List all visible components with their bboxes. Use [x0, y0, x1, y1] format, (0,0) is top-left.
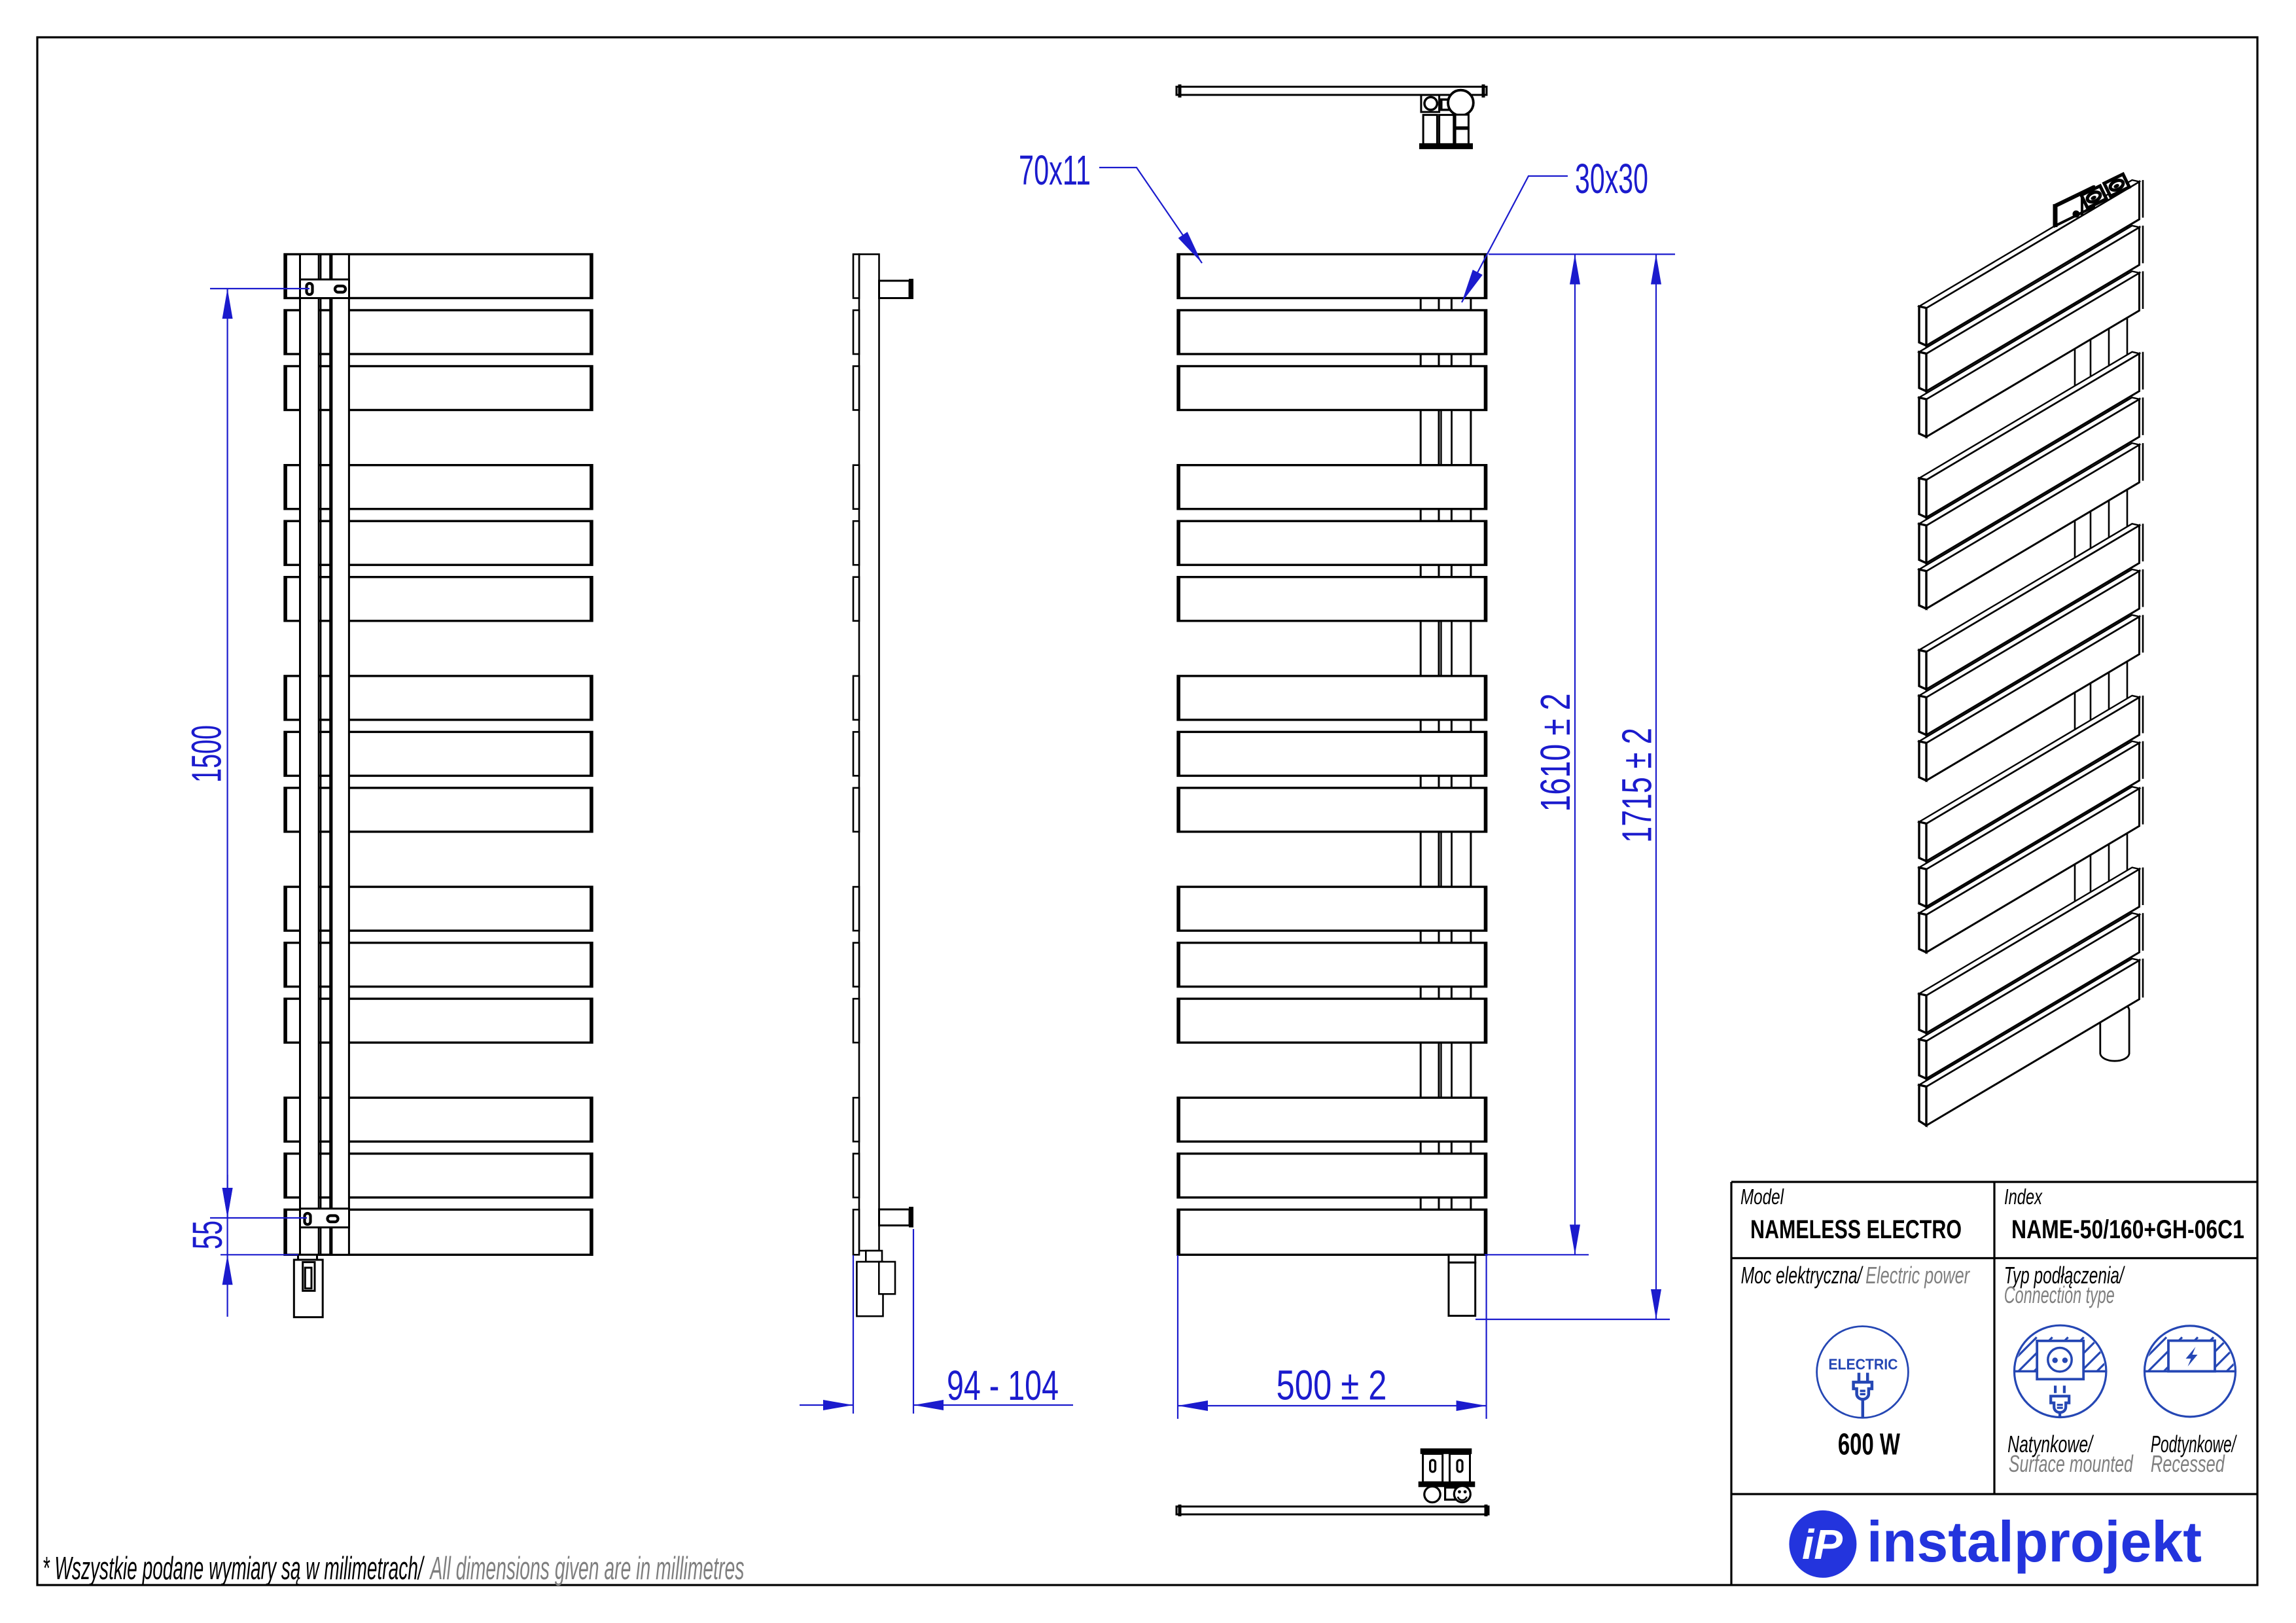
svg-text:Index: Index: [2004, 1185, 2043, 1209]
svg-text:ELECTRIC: ELECTRIC: [1828, 1356, 1898, 1373]
svg-text:Recessed: Recessed: [2151, 1450, 2225, 1477]
svg-text:500 ± 2: 500 ± 2: [1277, 1361, 1387, 1408]
svg-text:iP: iP: [1802, 1521, 1843, 1568]
svg-text:94 - 104: 94 - 104: [947, 1362, 1059, 1409]
svg-text:600 W: 600 W: [1838, 1427, 1900, 1461]
svg-text:NAMELESS ELECTRO: NAMELESS ELECTRO: [1750, 1215, 1962, 1244]
svg-text:Model: Model: [1740, 1185, 1784, 1209]
svg-text:instalprojekt: instalprojekt: [1867, 1509, 2202, 1574]
svg-text:70x11: 70x11: [1019, 147, 1091, 194]
svg-text:Surface mounted: Surface mounted: [2009, 1450, 2134, 1477]
svg-text:Electric power: Electric power: [1865, 1262, 1970, 1289]
svg-text:30x30: 30x30: [1575, 155, 1648, 202]
svg-text:* Wszystkie podane wymiary są: * Wszystkie podane wymiary są w milimetr…: [43, 1551, 425, 1586]
svg-text:1500: 1500: [183, 725, 230, 783]
svg-text:55: 55: [184, 1221, 231, 1249]
svg-text:All dimensions given are in mi: All dimensions given are in millimetres: [429, 1551, 745, 1586]
svg-text:1715 ± 2: 1715 ± 2: [1614, 728, 1661, 843]
svg-text:Moc elektryczna/: Moc elektryczna/: [1741, 1262, 1864, 1289]
svg-text:1610 ± 2: 1610 ± 2: [1532, 694, 1579, 812]
svg-text:Connection type: Connection type: [2004, 1281, 2115, 1308]
svg-text:NAME-50/160+GH-06C1: NAME-50/160+GH-06C1: [2011, 1215, 2244, 1244]
